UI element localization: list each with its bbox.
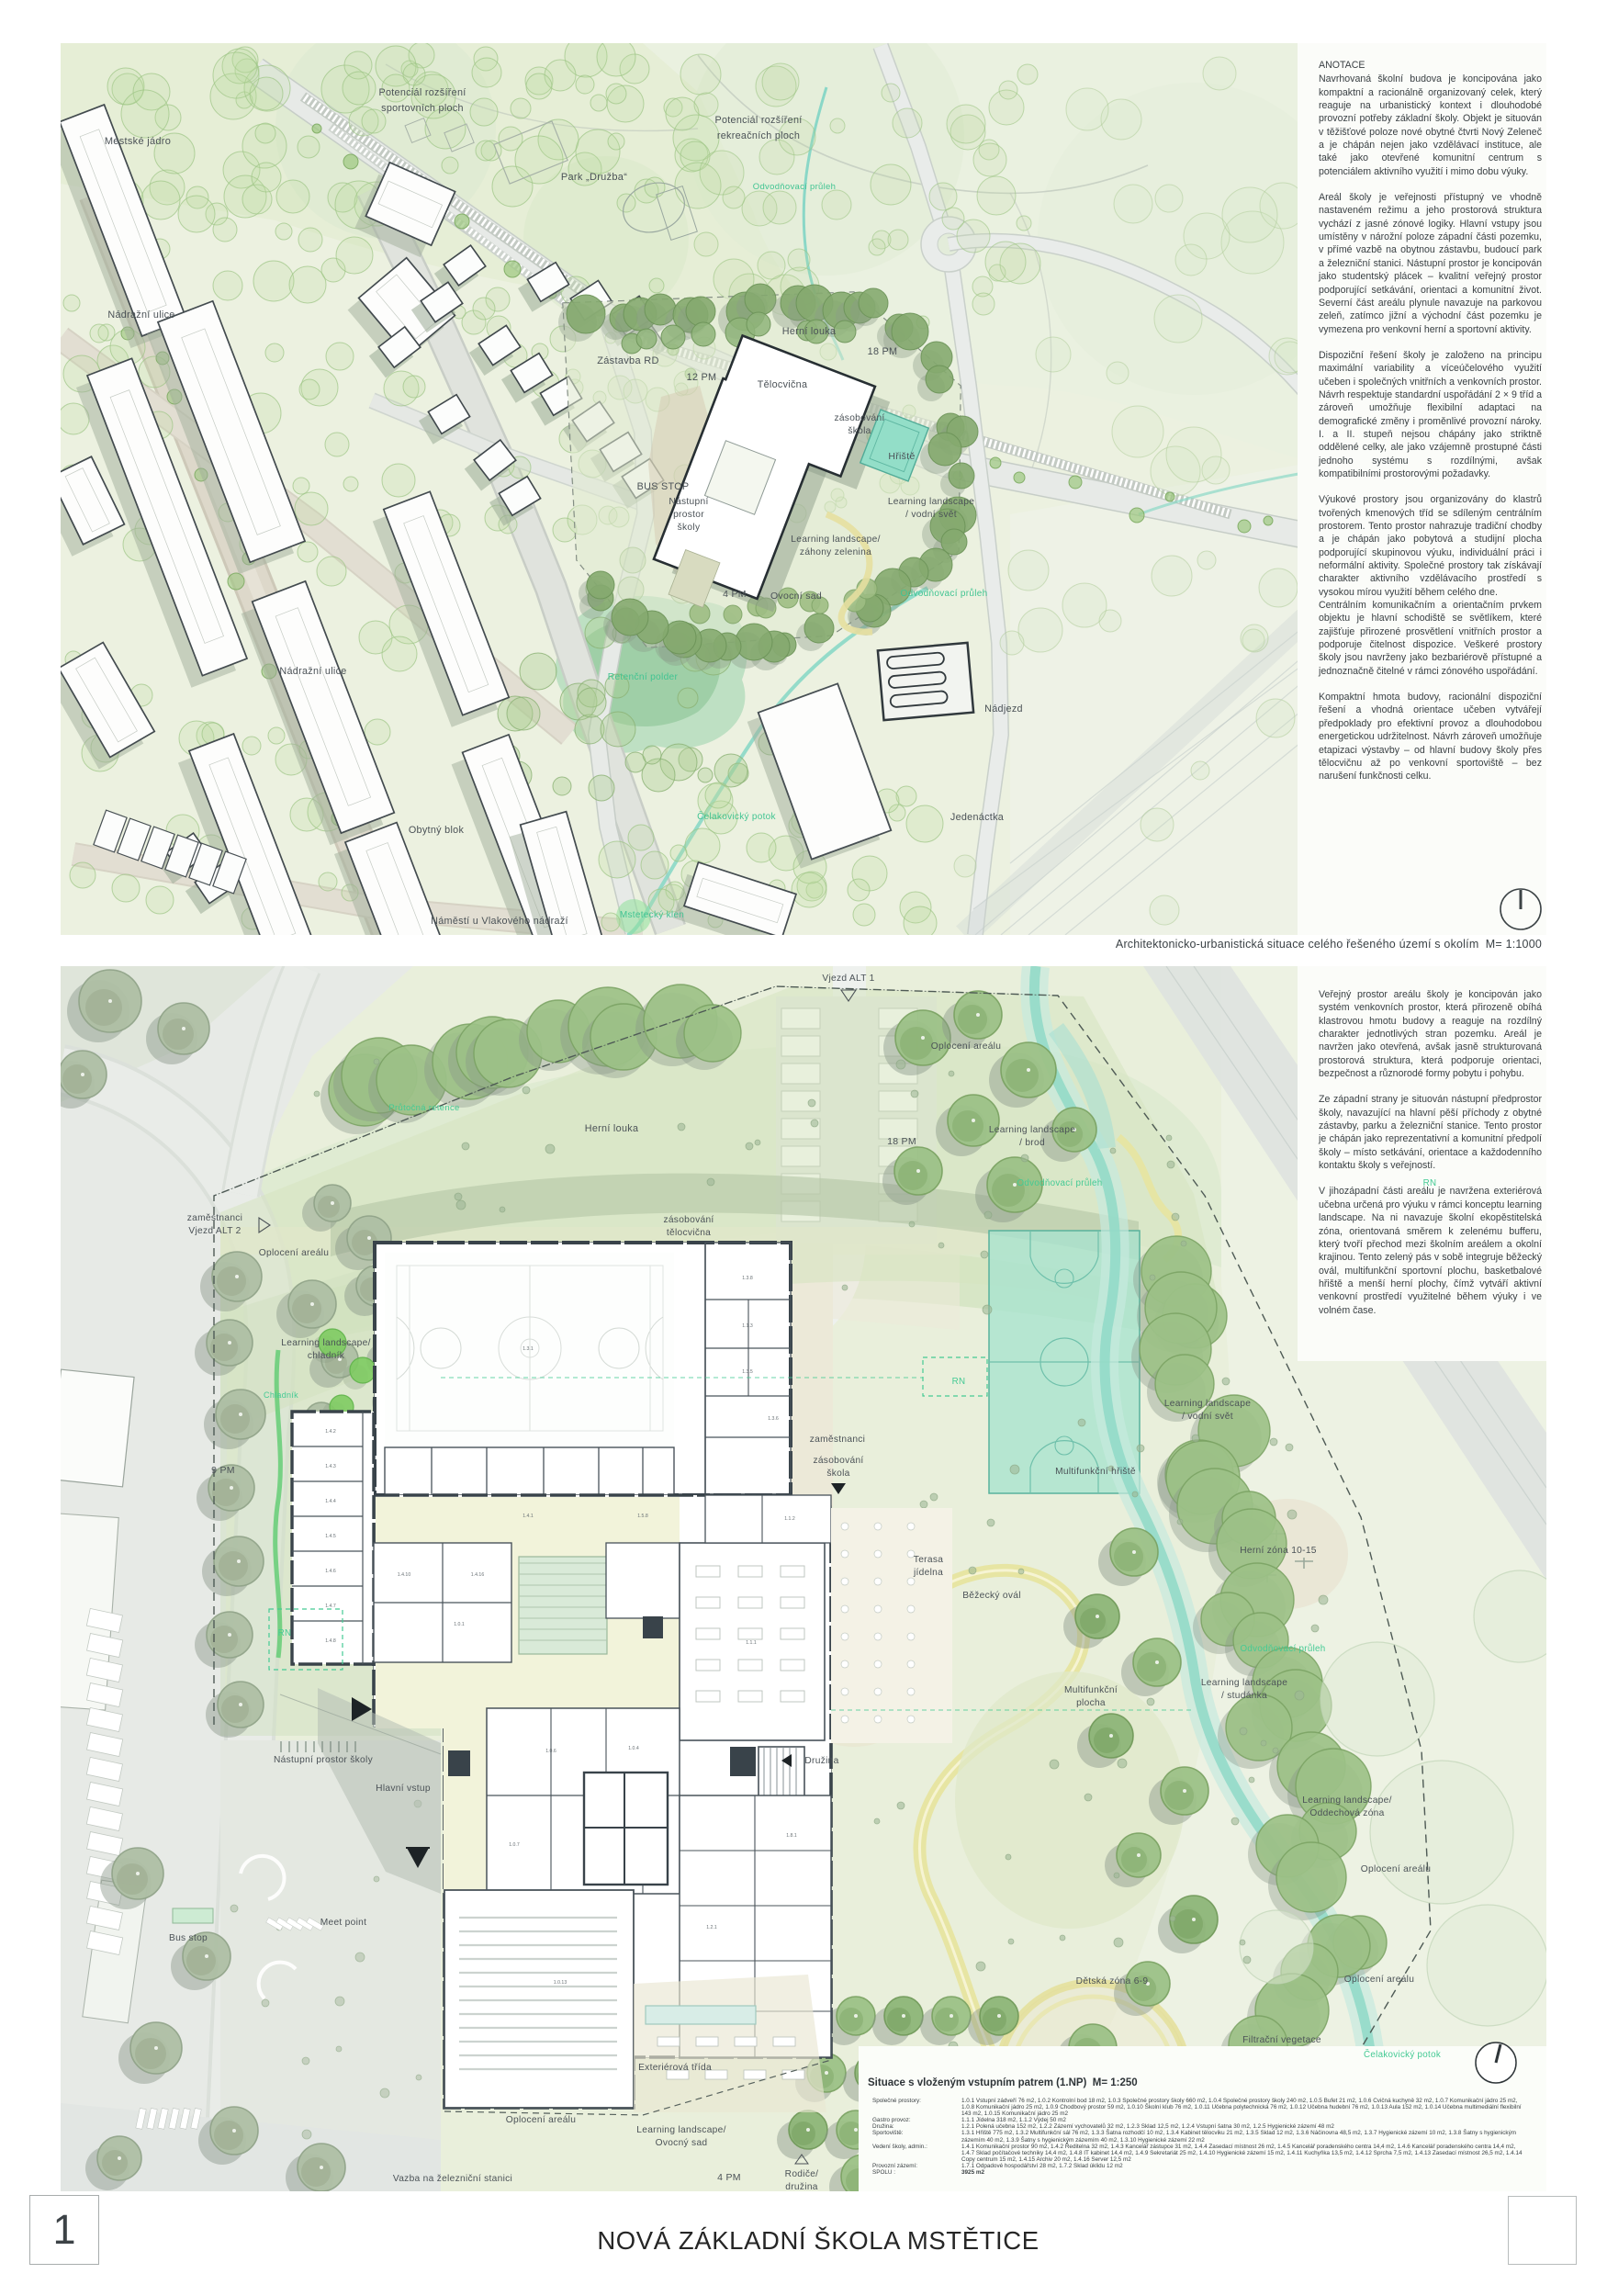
svg-text:1.4.1: 1.4.1 (523, 1514, 534, 1519)
svg-text:1.5.8: 1.5.8 (637, 1514, 648, 1519)
svg-text:Nástupní: Nástupní (669, 497, 708, 507)
svg-text:/ studánka: / studánka (1221, 1691, 1267, 1701)
svg-text:Zástavba RD: Zástavba RD (597, 355, 659, 366)
svg-text:1.3.6: 1.3.6 (768, 1416, 779, 1422)
svg-text:zásobování: zásobování (813, 1456, 863, 1466)
svg-text:Čelakovický potok: Čelakovický potok (1364, 2050, 1441, 2060)
svg-text:1.4.8: 1.4.8 (325, 1638, 336, 1644)
svg-text:1.0.7: 1.0.7 (509, 1842, 520, 1848)
svg-text:1.3.5: 1.3.5 (742, 1369, 753, 1375)
svg-text:Multifunkční: Multifunkční (1064, 1685, 1118, 1695)
svg-text:Průtočná retence: Průtočná retence (388, 1103, 459, 1113)
svg-text:sportovních ploch: sportovních ploch (381, 103, 464, 114)
svg-text:1.4.10: 1.4.10 (398, 1572, 411, 1578)
svg-text:rekreačních ploch: rekreačních ploch (717, 130, 800, 141)
svg-text:Oplocení areálu: Oplocení areálu (506, 2115, 576, 2125)
svg-text:Rodiče/: Rodiče/ (785, 2169, 819, 2179)
svg-text:Potenciál rozšíření: Potenciál rozšíření (378, 87, 466, 98)
svg-text:zásobování: zásobování (834, 413, 884, 423)
svg-text:Exteriérová třída: Exteriérová třída (638, 2063, 712, 2073)
svg-text:Learning landscape: Learning landscape (888, 497, 974, 507)
svg-text:Nádjezd: Nádjezd (984, 703, 1023, 715)
svg-text:tělocvična: tělocvična (667, 1228, 711, 1238)
svg-text:1.0.1: 1.0.1 (454, 1622, 465, 1627)
svg-text:Vazba na železniční stanici: Vazba na železniční stanici (393, 2174, 512, 2184)
svg-text:1.4.3: 1.4.3 (325, 1464, 336, 1469)
svg-text:družina: družina (785, 2182, 818, 2191)
svg-text:Ovocný sad: Ovocný sad (656, 2138, 708, 2148)
svg-text:18 PM: 18 PM (887, 1136, 916, 1147)
svg-text:Multifunkční hřiště: Multifunkční hřiště (1055, 1467, 1136, 1477)
svg-text:zaměstnanci: zaměstnanci (187, 1213, 243, 1223)
svg-text:1.0.13: 1.0.13 (554, 1980, 568, 1986)
svg-text:Mstetecký klen: Mstetecký klen (620, 910, 684, 920)
svg-text:Chladník: Chladník (264, 1390, 298, 1400)
svg-text:Learning landscape/: Learning landscape/ (636, 2125, 725, 2135)
svg-text:1.3.8: 1.3.8 (742, 1276, 753, 1281)
svg-text:prostor: prostor (673, 510, 704, 520)
svg-text:1.4.5: 1.4.5 (325, 1534, 336, 1539)
svg-text:1.4.7: 1.4.7 (325, 1604, 336, 1609)
svg-text:Oplocení areálu: Oplocení areálu (259, 1248, 329, 1258)
svg-text:Mestské jádro: Mestské jádro (105, 136, 171, 147)
svg-text:4 PM: 4 PM (723, 589, 747, 600)
svg-text:Learning landscape/: Learning landscape/ (281, 1338, 370, 1348)
svg-text:Odvodňovací průleh: Odvodňovací průleh (1017, 1178, 1102, 1188)
svg-text:/ vodní svět: / vodní svět (905, 510, 957, 520)
svg-text:Herní louka: Herní louka (585, 1123, 639, 1134)
svg-text:12 PM: 12 PM (687, 372, 717, 383)
svg-text:Oddechová zóna: Oddechová zóna (1309, 1808, 1384, 1818)
svg-text:Dětská zóna 6-9: Dětská zóna 6-9 (1076, 1976, 1149, 1986)
svg-text:Ovocní sad: Ovocní sad (770, 591, 822, 602)
svg-text:1.1.1: 1.1.1 (746, 1640, 757, 1646)
svg-text:Náměstí u Vlakového nádraží: Náměstí u Vlakového nádraží (431, 916, 568, 927)
svg-text:Čelakovický potok: Čelakovický potok (697, 810, 776, 822)
svg-text:Odvodňovací průleh: Odvodňovací průleh (753, 182, 836, 192)
svg-text:Nádražní ulice: Nádražní ulice (279, 666, 346, 677)
svg-text:/ brod: / brod (1019, 1138, 1045, 1148)
svg-text:Herní zóna 10-15: Herní zóna 10-15 (1240, 1546, 1317, 1556)
svg-text:4 PM: 4 PM (717, 2172, 741, 2183)
svg-text:1.4.6: 1.4.6 (325, 1569, 336, 1574)
svg-text:1.3.1: 1.3.1 (523, 1346, 534, 1352)
svg-text:1.4.2: 1.4.2 (325, 1429, 336, 1435)
svg-text:RN: RN (952, 1377, 966, 1387)
svg-text:Oplocení areálu: Oplocení areálu (1361, 1864, 1431, 1874)
svg-text:Družina: Družina (804, 1756, 838, 1766)
svg-text:1.4.16: 1.4.16 (471, 1572, 485, 1578)
svg-text:Hřiště: Hřiště (888, 451, 915, 462)
svg-text:Learning landscape: Learning landscape (1201, 1678, 1287, 1688)
svg-text:škola: škola (826, 1469, 849, 1479)
svg-text:Terasa: Terasa (914, 1555, 943, 1565)
svg-text:Filtrační vegetace: Filtrační vegetace (1242, 2035, 1321, 2045)
svg-text:Běžecký ovál: Běžecký ovál (962, 1591, 1021, 1601)
svg-text:1.1.2: 1.1.2 (784, 1516, 795, 1522)
svg-text:školy: školy (678, 523, 701, 533)
svg-text:Herní louka: Herní louka (782, 326, 837, 337)
svg-text:Potenciál rozšíření: Potenciál rozšíření (714, 115, 802, 126)
svg-text:1.4.4: 1.4.4 (325, 1499, 336, 1504)
svg-text:Learning landscape/: Learning landscape/ (1302, 1795, 1391, 1806)
svg-text:zaměstnanci: zaměstnanci (810, 1435, 866, 1445)
svg-text:Learning landscape/: Learning landscape/ (791, 535, 880, 545)
svg-text:9 PM: 9 PM (211, 1465, 235, 1476)
svg-text:plocha: plocha (1076, 1698, 1106, 1708)
svg-text:RN: RN (278, 1628, 292, 1638)
svg-text:zásobování: zásobování (663, 1215, 714, 1225)
svg-text:Nástupní prostor školy: Nástupní prostor školy (274, 1755, 374, 1765)
svg-text:Oplocení areálu: Oplocení areálu (1344, 1975, 1414, 1985)
svg-text:Park „Družba“: Park „Družba“ (561, 172, 627, 183)
svg-text:BUS STOP: BUS STOP (637, 481, 690, 492)
svg-text:1.1.3: 1.1.3 (742, 1323, 753, 1329)
svg-text:Retenční polder: Retenční polder (608, 672, 679, 682)
svg-text:Oplocení areálu: Oplocení areálu (931, 1041, 1001, 1052)
svg-text:Nádražní ulice: Nádražní ulice (107, 310, 174, 321)
svg-text:Learning landscape: Learning landscape (989, 1125, 1075, 1135)
svg-text:1.0.6: 1.0.6 (545, 1749, 556, 1754)
svg-text:18 PM: 18 PM (868, 346, 898, 357)
svg-text:jídelna: jídelna (913, 1568, 943, 1578)
svg-text:/ vodní svět: / vodní svět (1182, 1412, 1233, 1422)
svg-text:1.8.1: 1.8.1 (786, 1833, 797, 1839)
svg-text:Bus stop: Bus stop (169, 1933, 208, 1943)
svg-text:Odvodňovací průleh: Odvodňovací průleh (901, 588, 988, 599)
svg-text:Meet point: Meet point (320, 1918, 367, 1928)
svg-text:1.2.1: 1.2.1 (706, 1925, 717, 1930)
svg-text:Learning landscape: Learning landscape (1164, 1399, 1251, 1409)
svg-text:Tělocvična: Tělocvična (758, 379, 808, 390)
svg-text:Vjezd ALT 1: Vjezd ALT 1 (822, 974, 874, 984)
svg-text:chladník: chladník (308, 1351, 345, 1361)
svg-text:Hlavní vstup: Hlavní vstup (376, 1784, 431, 1794)
svg-text:Jedenáctka: Jedenáctka (950, 812, 1004, 823)
svg-text:záhony zelenina: záhony zelenina (800, 547, 871, 557)
svg-text:Obytný blok: Obytný blok (409, 825, 465, 836)
svg-text:škola: škola (848, 426, 871, 436)
svg-text:1.0.4: 1.0.4 (628, 1746, 639, 1751)
svg-text:Vjezd ALT 2: Vjezd ALT 2 (188, 1226, 241, 1236)
svg-text:Odvodňovací průleh: Odvodňovací průleh (1240, 1644, 1325, 1654)
